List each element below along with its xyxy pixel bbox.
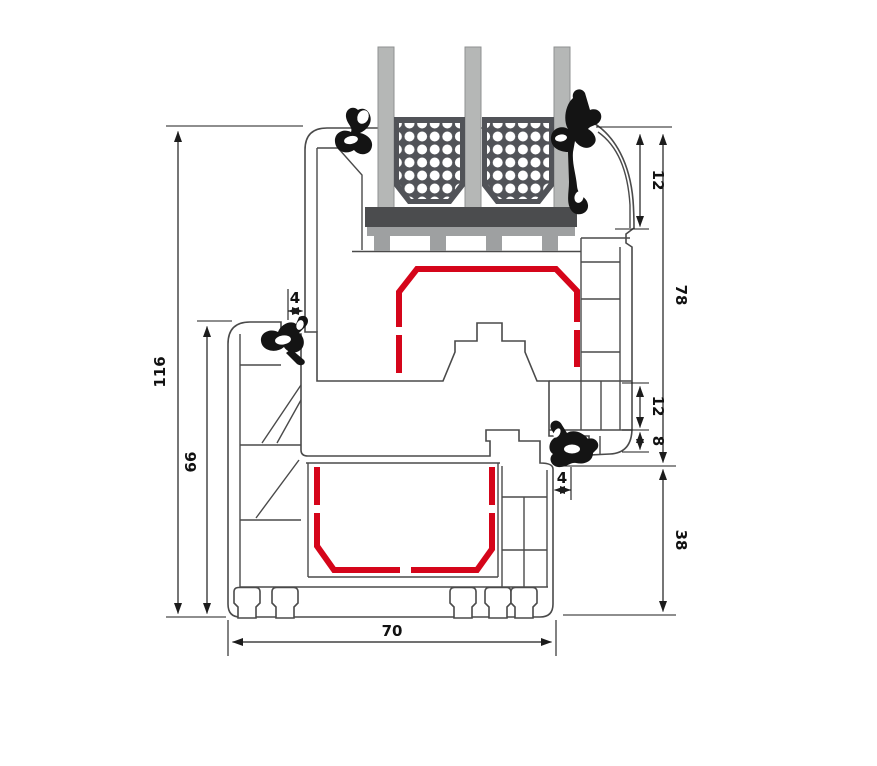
drawing-canvas: 116 66 70 12 78 12 8 4 <box>0 0 877 766</box>
screw-channel <box>450 588 476 619</box>
bridge-leg <box>374 236 390 251</box>
dim-label-8: 8 <box>649 436 667 446</box>
glazing-block-dark <box>365 207 577 227</box>
dim-label-4-top: 4 <box>290 289 300 307</box>
screw-channel <box>485 588 511 619</box>
glass-pane <box>378 47 394 208</box>
gasket-hole <box>564 445 580 454</box>
dim-label-116: 116 <box>151 356 169 387</box>
window-profile-section-drawing: 116 66 70 12 78 12 8 4 <box>0 0 877 766</box>
dim-seal-gap-bottom: 4 <box>555 469 571 490</box>
screw-channel <box>511 588 537 619</box>
spacer-desiccant-dots <box>487 123 549 199</box>
dim-label-66: 66 <box>182 452 200 473</box>
dim-label-38: 38 <box>672 530 690 551</box>
dim-seal-gap-top: 4 <box>289 289 303 311</box>
screw-channel <box>234 588 260 619</box>
dim-total-height: 116 <box>151 132 178 614</box>
dim-frame-height-left: 66 <box>182 327 207 614</box>
bridge-leg <box>430 236 446 251</box>
dim-label-70: 70 <box>382 622 403 640</box>
dim-frame-face-right: 38 <box>663 470 690 612</box>
dim-label-12-mid: 12 <box>649 396 667 417</box>
spacer-desiccant-dots <box>399 123 460 199</box>
glass-pane <box>465 47 481 208</box>
glazing-unit <box>365 47 577 251</box>
dim-label-4-bottom: 4 <box>557 469 567 487</box>
dim-frame-width-bottom: 70 <box>233 622 552 642</box>
dim-label-12-top: 12 <box>649 170 667 191</box>
glazing-bridge-light <box>367 227 575 236</box>
dim-label-78: 78 <box>672 285 690 306</box>
bridge-leg <box>486 236 502 251</box>
bridge-leg <box>542 236 558 251</box>
screw-channel <box>272 588 298 619</box>
